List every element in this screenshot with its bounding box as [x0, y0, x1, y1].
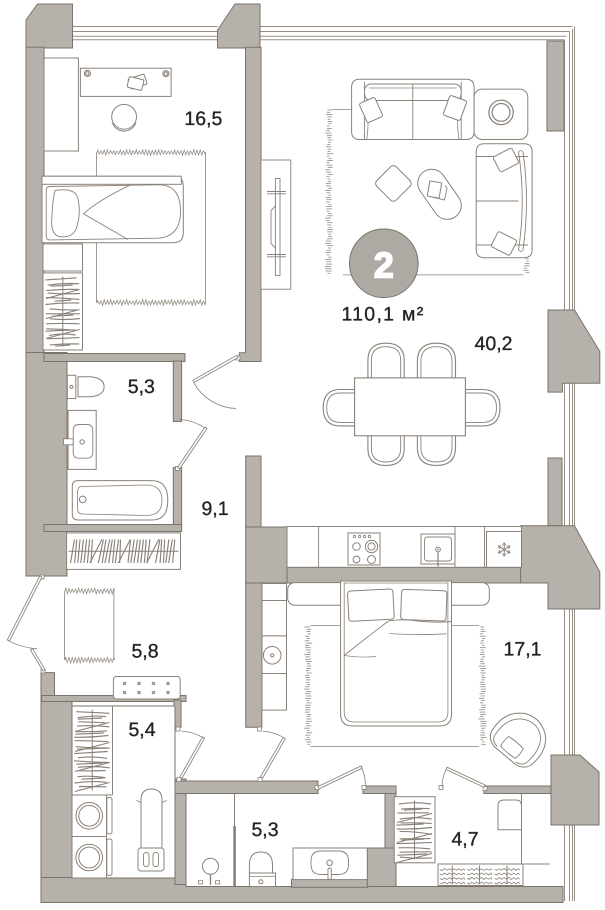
svg-text:110,1 м²: 110,1 м² — [341, 304, 424, 326]
svg-text:17,1: 17,1 — [504, 639, 542, 661]
svg-text:4,7: 4,7 — [451, 829, 478, 851]
svg-text:40,2: 40,2 — [475, 333, 513, 355]
svg-text:2: 2 — [374, 245, 394, 286]
svg-text:5,3: 5,3 — [251, 819, 278, 841]
svg-text:9,1: 9,1 — [201, 498, 228, 520]
svg-text:5,3: 5,3 — [128, 376, 155, 398]
svg-text:5,4: 5,4 — [128, 719, 155, 741]
svg-text:5,8: 5,8 — [131, 641, 158, 663]
svg-text:16,5: 16,5 — [184, 108, 222, 130]
